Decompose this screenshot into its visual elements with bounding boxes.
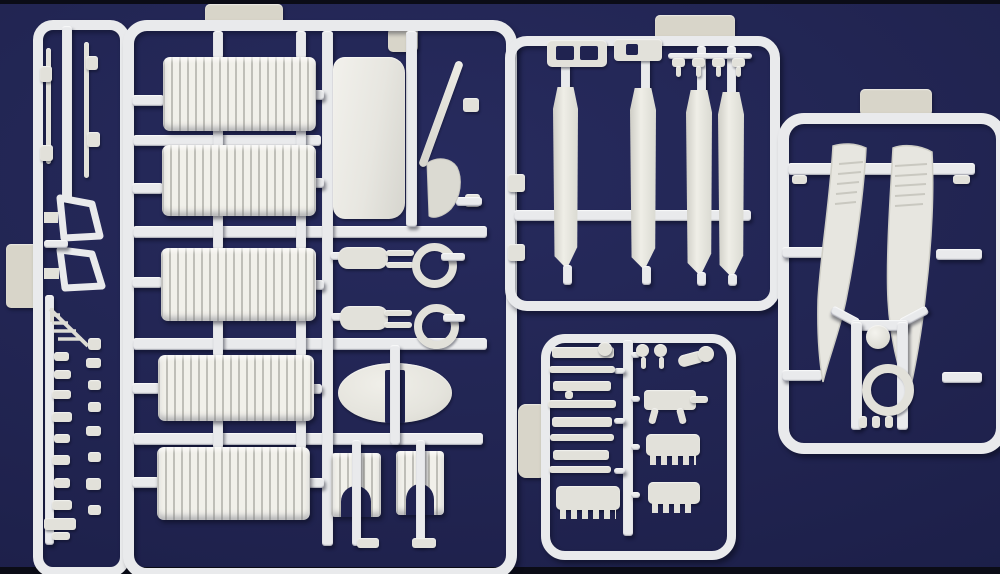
runner-bar bbox=[133, 226, 487, 238]
gate-stub bbox=[296, 31, 306, 59]
cowl-ring bbox=[412, 243, 457, 288]
fitting bbox=[86, 478, 101, 490]
machine-gun-part bbox=[553, 381, 611, 391]
gate-nub bbox=[357, 538, 379, 548]
bolt-part bbox=[636, 344, 649, 357]
runner-bar bbox=[62, 26, 72, 202]
gate-nub bbox=[463, 98, 479, 112]
float-side-part bbox=[686, 90, 712, 276]
gate-nub bbox=[87, 132, 100, 147]
engine-fins bbox=[650, 454, 696, 465]
fitting bbox=[88, 380, 101, 390]
nacelle-prong bbox=[386, 250, 414, 256]
float-side-part bbox=[630, 88, 656, 270]
nacelle-prong bbox=[384, 310, 412, 316]
gun-barrel bbox=[690, 396, 708, 403]
engine-nacelle bbox=[340, 306, 388, 330]
finned-engine-block bbox=[648, 482, 700, 504]
runner-bar bbox=[406, 31, 417, 227]
engine-fins bbox=[560, 508, 616, 519]
rod-part bbox=[550, 434, 614, 441]
gun-mount-part bbox=[644, 390, 696, 410]
hatch-opening bbox=[626, 44, 638, 55]
fin-part bbox=[424, 156, 464, 222]
boarding-ladder-part bbox=[46, 306, 92, 350]
fitting bbox=[54, 478, 70, 488]
gate-stub bbox=[296, 419, 306, 449]
gate-stub bbox=[614, 418, 625, 424]
fitting bbox=[86, 358, 101, 368]
gate-stub bbox=[296, 214, 306, 250]
gate-stub bbox=[631, 492, 640, 498]
engine-fins bbox=[652, 502, 696, 513]
windscreen-opening bbox=[580, 46, 598, 60]
windscreen-opening bbox=[556, 46, 574, 60]
gate-nub bbox=[508, 244, 525, 261]
runner-bar bbox=[44, 240, 68, 248]
fitting bbox=[52, 390, 71, 399]
bolt-part bbox=[659, 357, 664, 369]
clip-part bbox=[696, 66, 701, 77]
gate-stub bbox=[642, 266, 651, 285]
clip-part bbox=[736, 66, 741, 77]
fitting bbox=[54, 352, 69, 361]
finned-engine-block bbox=[556, 486, 620, 510]
engine-nacelle bbox=[338, 247, 388, 269]
center-section-panel bbox=[333, 57, 405, 219]
corner-fitting bbox=[52, 532, 70, 540]
runner-bar bbox=[416, 440, 425, 546]
bolt-part bbox=[641, 357, 646, 369]
cowl-ring bbox=[862, 364, 914, 416]
float-side-part bbox=[718, 92, 744, 278]
gate-stub bbox=[296, 319, 306, 357]
gate-stub bbox=[213, 31, 223, 59]
comb-tooth bbox=[885, 416, 893, 428]
corrugated-wing-panel bbox=[163, 57, 316, 131]
fitting bbox=[88, 505, 101, 515]
runner-bar bbox=[133, 433, 483, 445]
gate-stub bbox=[728, 274, 737, 286]
gate-nub bbox=[40, 66, 52, 82]
runner-bar bbox=[390, 345, 400, 445]
gate-stub bbox=[132, 383, 160, 394]
strut-part bbox=[552, 417, 612, 427]
gate-stub bbox=[132, 183, 163, 194]
comb-tooth bbox=[859, 416, 867, 428]
fitting bbox=[86, 426, 101, 436]
fitting bbox=[52, 455, 70, 465]
corrugated-wing-panel bbox=[157, 447, 310, 520]
corrugated-wing-panel bbox=[162, 145, 316, 216]
ball-fitting bbox=[866, 325, 890, 349]
finned-engine-block bbox=[646, 434, 700, 456]
cowl-ring bbox=[414, 304, 459, 349]
gate-nub bbox=[40, 145, 53, 161]
fitting bbox=[54, 370, 71, 379]
machine-gun-part bbox=[598, 342, 612, 356]
gate-nub bbox=[86, 56, 98, 70]
runner-bar bbox=[352, 440, 361, 546]
bolt-part bbox=[654, 344, 667, 357]
fitting bbox=[54, 434, 70, 443]
corrugated-wing-panel bbox=[158, 355, 314, 421]
model-kit-sprues-photo bbox=[0, 0, 1000, 574]
comb-tooth bbox=[872, 416, 880, 428]
horn-part bbox=[698, 346, 714, 362]
gate-stub bbox=[631, 396, 640, 402]
gate-stub bbox=[132, 95, 164, 106]
nacelle-prong bbox=[386, 262, 414, 268]
photo-top-edge bbox=[0, 0, 1000, 4]
gate-stub bbox=[213, 419, 223, 449]
fitting bbox=[52, 412, 72, 422]
gate-stub bbox=[697, 272, 706, 286]
gate-nub bbox=[508, 174, 525, 192]
gate-stub bbox=[213, 319, 223, 357]
rod-part bbox=[549, 466, 611, 473]
rod-part bbox=[548, 400, 616, 408]
gate-stub bbox=[213, 214, 223, 250]
gate-stub bbox=[563, 265, 572, 285]
runner-bar bbox=[851, 322, 862, 430]
gate-stub bbox=[614, 468, 625, 474]
fitting bbox=[88, 402, 101, 412]
gate-stub bbox=[631, 444, 640, 450]
fitting bbox=[52, 500, 72, 510]
gate-nub bbox=[565, 391, 573, 399]
sprue-top-tab bbox=[860, 89, 932, 116]
float-side-part bbox=[553, 87, 578, 269]
corner-fitting bbox=[44, 518, 76, 530]
gate-nub bbox=[412, 538, 436, 548]
gate-stub bbox=[132, 277, 162, 288]
fitting bbox=[88, 338, 101, 350]
gate-stub bbox=[443, 314, 465, 322]
strut-part bbox=[553, 450, 609, 460]
gate-stub bbox=[614, 368, 625, 374]
fitting bbox=[88, 452, 101, 462]
gate-stub bbox=[132, 477, 159, 488]
corrugated-wing-panel bbox=[161, 248, 316, 321]
gate-stub bbox=[441, 253, 465, 261]
hatch-part bbox=[614, 39, 662, 61]
rod-part bbox=[549, 366, 615, 373]
clip-part bbox=[716, 66, 721, 77]
nacelle-prong bbox=[384, 322, 412, 328]
clip-part bbox=[676, 66, 681, 77]
